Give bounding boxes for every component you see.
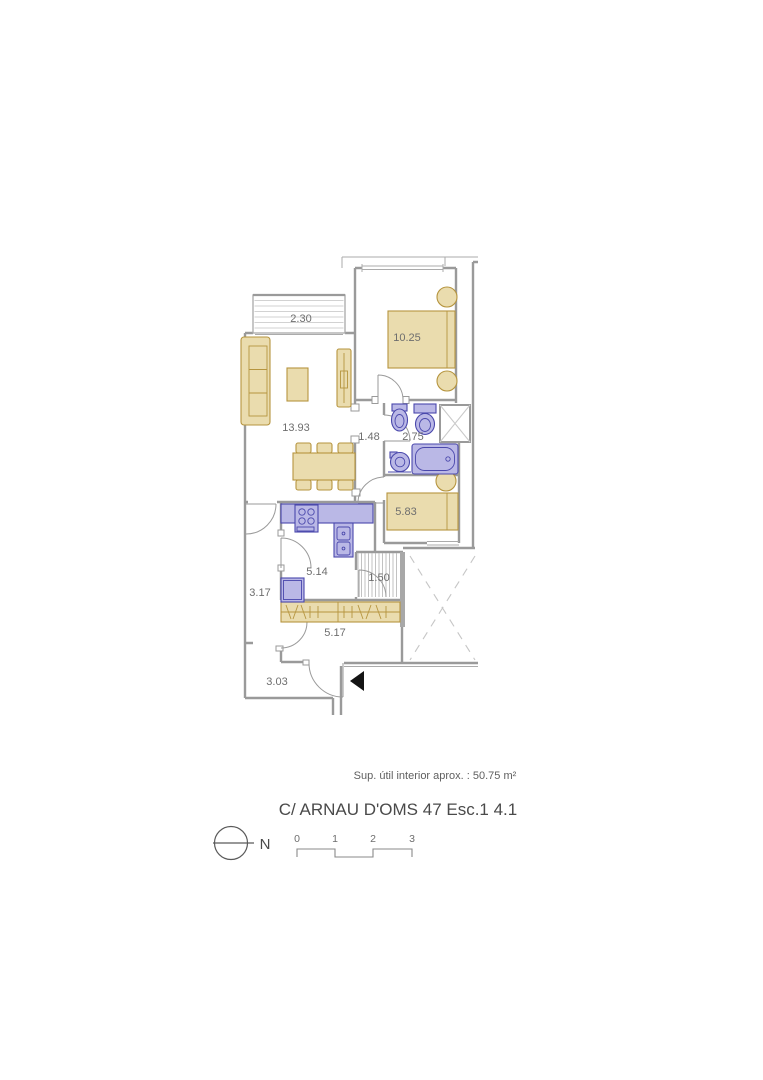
- room-label-hallway: 1.48: [358, 431, 379, 443]
- stove: [295, 505, 318, 532]
- room-label-kitchen: 5.14: [306, 566, 327, 578]
- room-label-corridor: 3.17: [249, 587, 270, 599]
- bathtub: [412, 444, 458, 474]
- courtyard-marking: [410, 556, 475, 660]
- room-label-stair-closet: 1.50: [368, 572, 389, 584]
- bath-sink: [388, 452, 411, 472]
- toilet: [414, 404, 436, 435]
- nightstand: [437, 371, 457, 391]
- plan-title: C/ ARNAU D'OMS 47 Esc.1 4.1: [279, 800, 518, 819]
- wardrobe: [281, 602, 400, 622]
- entrance-arrow: [350, 671, 364, 691]
- floor-plan-page: 2.30 13.93 10.25 1.48 2.75 5.83 5.14 3.1…: [0, 0, 763, 1080]
- scale-tick-3: 3: [409, 833, 415, 845]
- scale-tick-2: 2: [370, 833, 376, 845]
- doors: [246, 375, 410, 697]
- nightstand: [437, 287, 457, 307]
- stair-side-wall: [400, 552, 405, 627]
- room-label-balcony: 2.30: [290, 313, 311, 325]
- sofa: [241, 337, 270, 425]
- room-label-main-bedroom: 10.25: [393, 332, 421, 344]
- north-arrow: N: [213, 827, 270, 860]
- floor-plan-drawing: 2.30 13.93 10.25 1.48 2.75 5.83 5.14 3.1…: [0, 0, 763, 1080]
- scale-tick-1: 1: [332, 833, 338, 845]
- second-bed: [387, 471, 458, 530]
- vent-shaft: [440, 405, 470, 442]
- tv-unit: [337, 349, 351, 407]
- room-label-bathroom: 2.75: [402, 431, 423, 443]
- coffee-table: [287, 368, 308, 401]
- room-label-second-bedroom: 5.83: [395, 506, 416, 518]
- fridge: [281, 578, 304, 602]
- scale-bar: 0 1 2 3: [294, 833, 415, 857]
- scale-tick-0: 0: [294, 833, 300, 845]
- room-label-entry-hall: 3.03: [266, 676, 287, 688]
- dining-table: [293, 443, 355, 490]
- bidet: [392, 404, 408, 431]
- room-label-wardrobe-hall: 5.17: [324, 627, 345, 639]
- north-label: N: [260, 836, 271, 853]
- room-label-living-room: 13.93: [282, 422, 310, 434]
- area-note: Sup. útil interior aprox. : 50.75 m²: [354, 770, 517, 782]
